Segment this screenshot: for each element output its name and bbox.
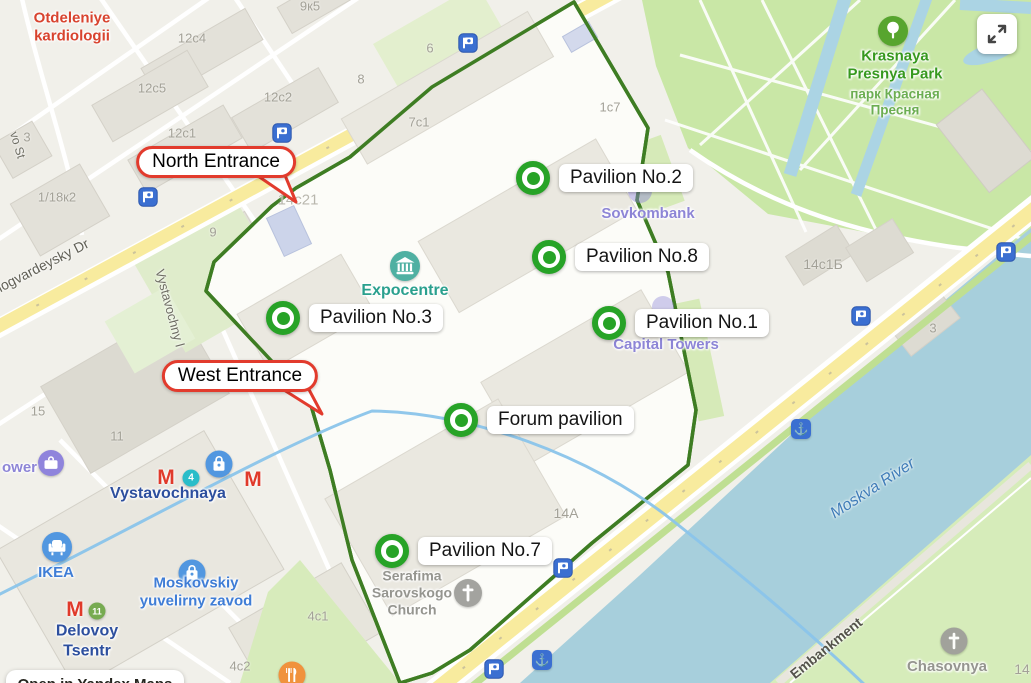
building-number: 1/18к2 <box>38 190 76 205</box>
furniture-store-icon[interactable] <box>42 532 72 562</box>
building-number: 3 <box>929 321 936 336</box>
building-number: 1c7 <box>600 100 621 115</box>
pavilion-label[interactable]: Pavilion No.2 <box>559 164 693 192</box>
marker-pavilion-1[interactable]: Pavilion No.1 <box>592 306 769 340</box>
west-entrance-callout[interactable]: West Entrance <box>162 360 318 392</box>
restaurant-icon[interactable] <box>279 662 306 683</box>
museum-icon[interactable] <box>390 251 420 281</box>
building-number: 11 <box>110 429 124 444</box>
marker-pavilion-8[interactable]: Pavilion No.8 <box>532 240 709 274</box>
building-number: 12c4 <box>178 31 206 46</box>
poi-label-tower-partial[interactable]: ower <box>2 459 37 477</box>
poi-label-krasnaya-presnya-park-ru: парк Красная Пресня <box>850 87 939 120</box>
poi-label-krasnaya-presnya-park[interactable]: Krasnaya Presnya Park <box>847 48 942 85</box>
bus-stop-icon[interactable] <box>458 33 478 53</box>
pavilion-pin-icon[interactable] <box>532 240 566 274</box>
north-entrance-callout[interactable]: North Entrance <box>136 146 296 178</box>
marker-pavilion-2[interactable]: Pavilion No.2 <box>516 161 693 195</box>
building-number: 14 <box>1014 661 1030 677</box>
poi-label-ikea[interactable]: IKEA <box>38 564 74 582</box>
poi-label-chasovnya[interactable]: Chasovnya <box>907 658 987 676</box>
pavilion-label[interactable]: Pavilion No.8 <box>575 243 709 271</box>
bus-stop-icon[interactable] <box>996 242 1016 262</box>
building-number: 14A <box>554 505 579 521</box>
business-center-icon[interactable] <box>38 450 64 476</box>
building-number: 9 <box>209 225 216 240</box>
building-number: 4c1 <box>308 609 329 624</box>
building-number: 12c1 <box>168 126 196 141</box>
shopping-icon[interactable] <box>206 451 233 478</box>
expand-map-button[interactable] <box>977 14 1017 54</box>
church-icon[interactable] <box>454 579 482 607</box>
church-icon[interactable] <box>941 628 968 655</box>
building-number: 6 <box>426 41 433 56</box>
pavilion-pin-icon[interactable] <box>592 306 626 340</box>
pavilion-pin-icon[interactable] <box>516 161 550 195</box>
marker-pavilion-3[interactable]: Pavilion No.3 <box>266 301 443 335</box>
pavilion-label[interactable]: Pavilion No.7 <box>418 537 552 565</box>
park-tree-icon[interactable] <box>878 16 908 46</box>
pavilion-label[interactable]: Pavilion No.3 <box>309 304 443 332</box>
building-number: 15 <box>31 404 45 419</box>
building-number: 14c1Б <box>803 256 843 272</box>
poi-label-vystavochnaya[interactable]: Vystavochnaya <box>110 484 226 504</box>
building-number: 12c5 <box>138 81 166 96</box>
poi-label-delovoy-tsentr[interactable]: Delovoy Tsentr <box>56 621 118 660</box>
poi-label-otdeleniye-kardiologii[interactable]: Otdeleniye kardiologii <box>34 10 111 47</box>
bus-stop-icon[interactable] <box>553 558 573 578</box>
metro-m-icon[interactable]: М <box>66 598 84 622</box>
poi-label-serafima-church[interactable]: Serafima Sarovskogo Church <box>372 567 452 618</box>
poi-label-moskovskiy[interactable]: Moskovskiy yuvelirny zavod <box>140 575 253 612</box>
pavilion-pin-icon[interactable] <box>444 403 478 437</box>
building-number: 3 <box>23 130 30 145</box>
building-number: 8 <box>357 72 364 87</box>
pier-anchor-icon[interactable]: ⚓ <box>532 650 552 670</box>
expand-arrows-icon <box>985 22 1009 46</box>
building-number: 4c2 <box>230 659 251 674</box>
building-number: 9к5 <box>300 0 320 14</box>
pavilion-label[interactable]: Pavilion No.1 <box>635 309 769 337</box>
metro-m-icon[interactable]: М <box>244 468 262 492</box>
marker-pavilion-7[interactable]: Pavilion No.7 <box>375 534 552 568</box>
metro-line-11-badge[interactable]: 11 <box>89 603 106 620</box>
pavilion-label[interactable]: Forum pavilion <box>487 406 634 434</box>
building-number: 12c2 <box>264 90 292 105</box>
map-canvas[interactable]: nogvardeysky Dr vo St Vystavochny l Emba… <box>0 0 1031 683</box>
pier-anchor-icon[interactable]: ⚓ <box>791 419 811 439</box>
building-number: 14c21 <box>278 192 319 209</box>
poi-label-expocentre[interactable]: Expocentre <box>361 281 448 301</box>
pavilion-pin-icon[interactable] <box>375 534 409 568</box>
bus-stop-icon[interactable] <box>851 306 871 326</box>
bus-stop-icon[interactable] <box>484 659 504 679</box>
building-number: 7c1 <box>409 115 430 130</box>
open-in-yandex-maps-link[interactable]: Open in Yandex Maps <box>6 670 184 683</box>
bus-stop-icon[interactable] <box>138 187 158 207</box>
marker-forum-pavilion[interactable]: Forum pavilion <box>444 403 634 437</box>
bus-stop-icon[interactable] <box>272 123 292 143</box>
poi-label-sovkombank[interactable]: Sovkombank <box>601 205 694 223</box>
pavilion-pin-icon[interactable] <box>266 301 300 335</box>
